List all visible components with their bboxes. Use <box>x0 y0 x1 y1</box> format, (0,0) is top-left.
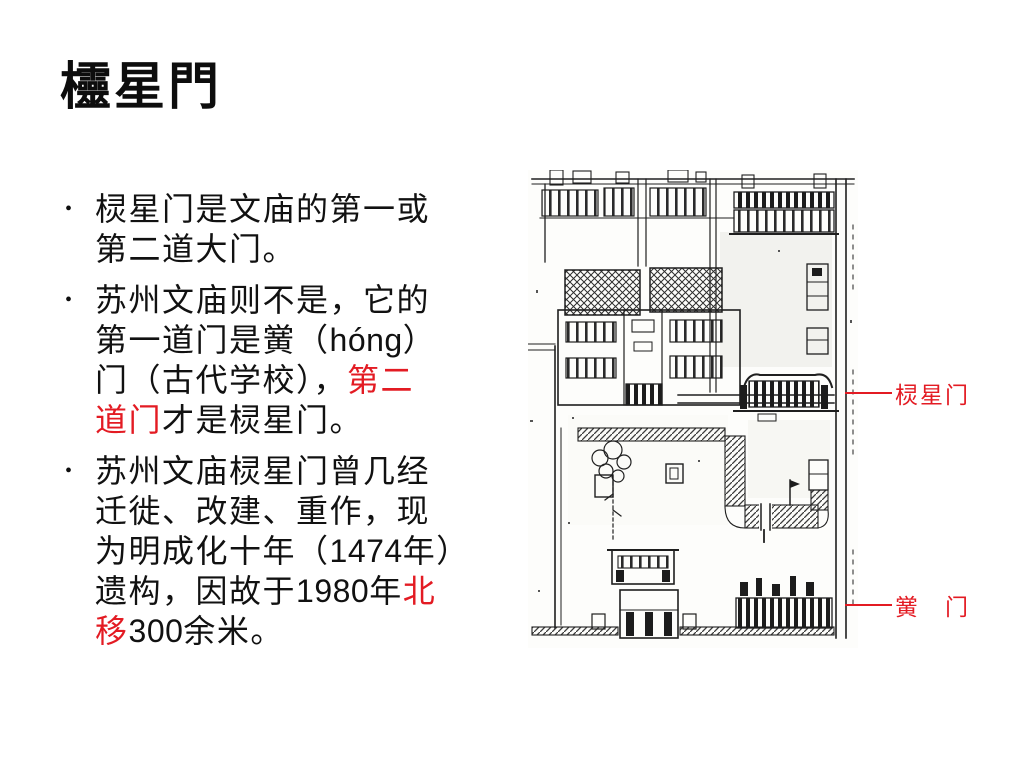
temple-map-figure <box>528 170 858 648</box>
bullet-marker: • <box>62 280 95 440</box>
bullet-item: •苏州文庙则不是，它的第一道门是黉（hóng）门（古代学校），第二道门才是棂星门… <box>62 280 512 440</box>
bullet-marker: • <box>62 189 95 269</box>
bullet-item: •苏州文庙棂星门曾几经迁徙、改建、重作，现为明成化十年（1474年）遗构，因故于… <box>62 451 512 651</box>
label-pointer-line-icon <box>845 392 892 394</box>
bullet-text: 苏州文庙则不是，它的第一道门是黉（hóng）门（古代学校），第二道门才是棂星门。 <box>95 280 436 440</box>
temple-plan-drawing <box>528 170 858 648</box>
label-pointer-line-icon <box>845 604 892 606</box>
bullet-text: 苏州文庙棂星门曾几经迁徙、改建、重作，现为明成化十年（1474年）遗构，因故于1… <box>95 451 470 651</box>
bullet-item: •棂星门是文庙的第一或第二道大门。 <box>62 189 512 269</box>
bullet-text: 棂星门是文庙的第一或第二道大门。 <box>95 189 430 269</box>
bullet-marker: • <box>62 451 95 651</box>
map-label-text: 黉 门 <box>895 588 970 622</box>
bullet-list: •棂星门是文庙的第一或第二道大门。•苏州文庙则不是，它的第一道门是黉（hóng）… <box>62 189 512 662</box>
map-label-hongmen: 黉 门 <box>845 592 970 618</box>
map-label-text: 棂星门 <box>895 376 970 410</box>
map-label-lingxingmen: 棂星门 <box>845 380 970 406</box>
slide-title: 欞星門 <box>60 57 222 119</box>
